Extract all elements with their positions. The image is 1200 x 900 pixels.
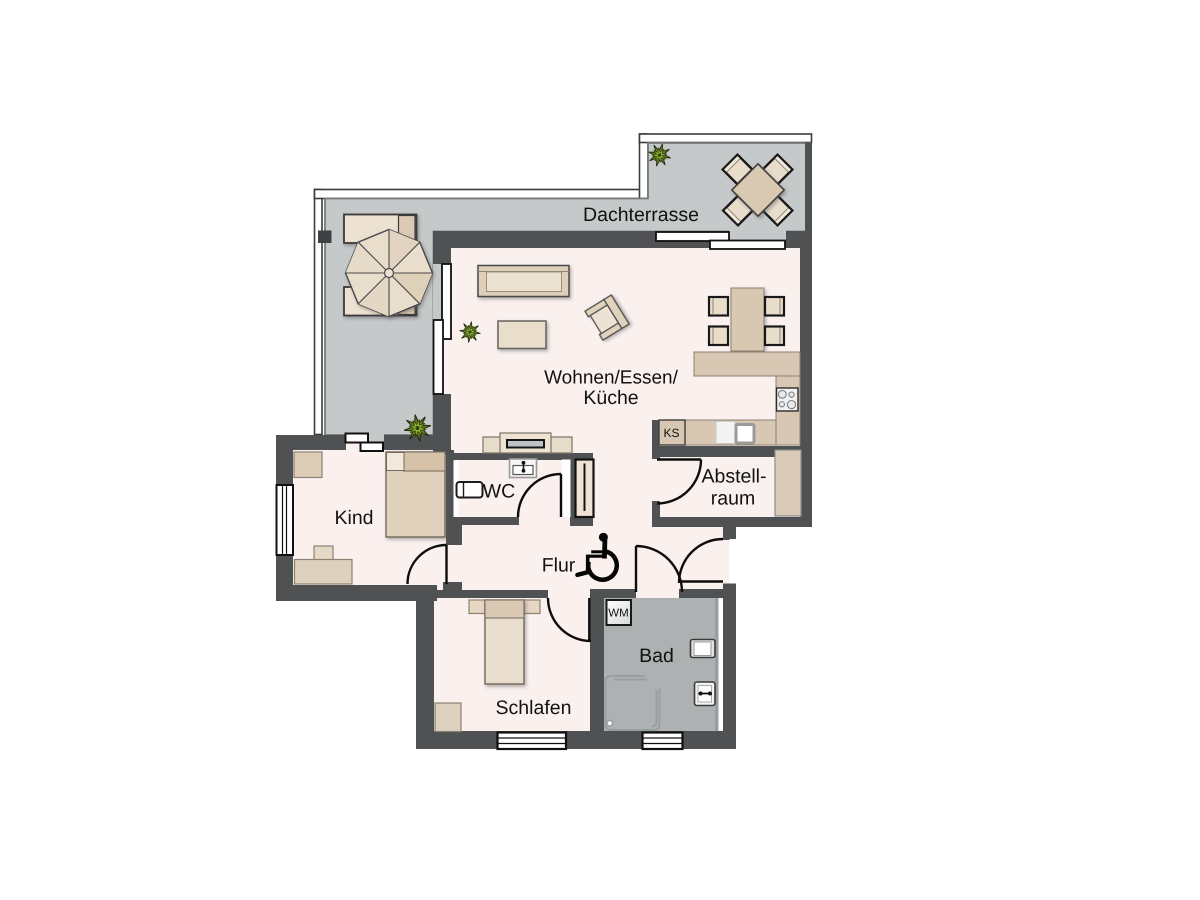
svg-text:WM: WM [608, 608, 628, 620]
svg-text:Flur: Flur [542, 555, 576, 577]
svg-text:Schlafen: Schlafen [496, 697, 572, 719]
svg-text:Dachterrasse: Dachterrasse [583, 204, 699, 226]
svg-text:Küche: Küche [583, 387, 638, 409]
svg-text:Abstell-: Abstell- [701, 466, 766, 488]
svg-text:Wohnen/Essen/: Wohnen/Essen/ [544, 368, 679, 389]
svg-text:WC: WC [483, 481, 516, 503]
svg-text:Kind: Kind [334, 507, 373, 529]
svg-text:Bad: Bad [639, 645, 674, 667]
svg-text:KS: KS [663, 426, 679, 440]
svg-text:raum: raum [711, 488, 755, 510]
